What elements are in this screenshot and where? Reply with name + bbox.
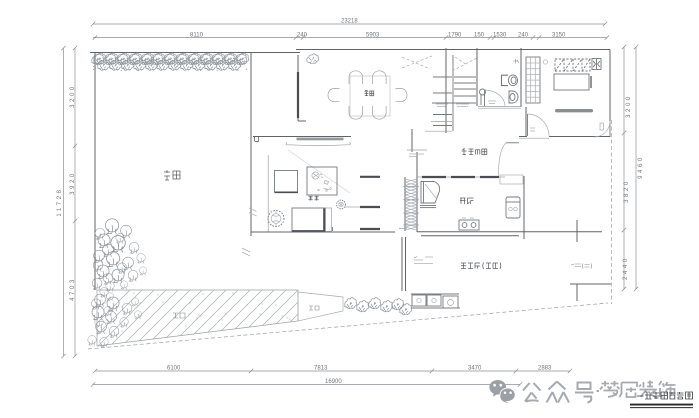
svg-text:16900: 16900 — [325, 379, 342, 385]
svg-text:11728: 11728 — [57, 187, 63, 216]
svg-text:5903: 5903 — [366, 32, 380, 38]
svg-text:150: 150 — [474, 32, 485, 38]
svg-text:9460: 9460 — [638, 155, 644, 179]
svg-text:1790: 1790 — [448, 32, 462, 38]
svg-text:2440: 2440 — [623, 256, 629, 280]
svg-text:23218: 23218 — [341, 19, 358, 25]
svg-text:3150: 3150 — [552, 32, 566, 38]
svg-text:8110: 8110 — [190, 32, 204, 38]
svg-text:1530: 1530 — [493, 32, 507, 38]
svg-text:240: 240 — [297, 32, 308, 38]
svg-text:7813: 7813 — [314, 366, 328, 372]
svg-text:2883: 2883 — [538, 366, 552, 372]
svg-text:3470: 3470 — [468, 366, 482, 372]
svg-text:3200: 3200 — [626, 94, 632, 118]
svg-text:3920: 3920 — [70, 171, 76, 195]
svg-text:3200: 3200 — [70, 84, 76, 108]
svg-text:4703: 4703 — [70, 277, 76, 301]
svg-text:6100: 6100 — [167, 366, 181, 372]
svg-text:3820: 3820 — [624, 179, 630, 203]
svg-text:240: 240 — [518, 32, 529, 38]
